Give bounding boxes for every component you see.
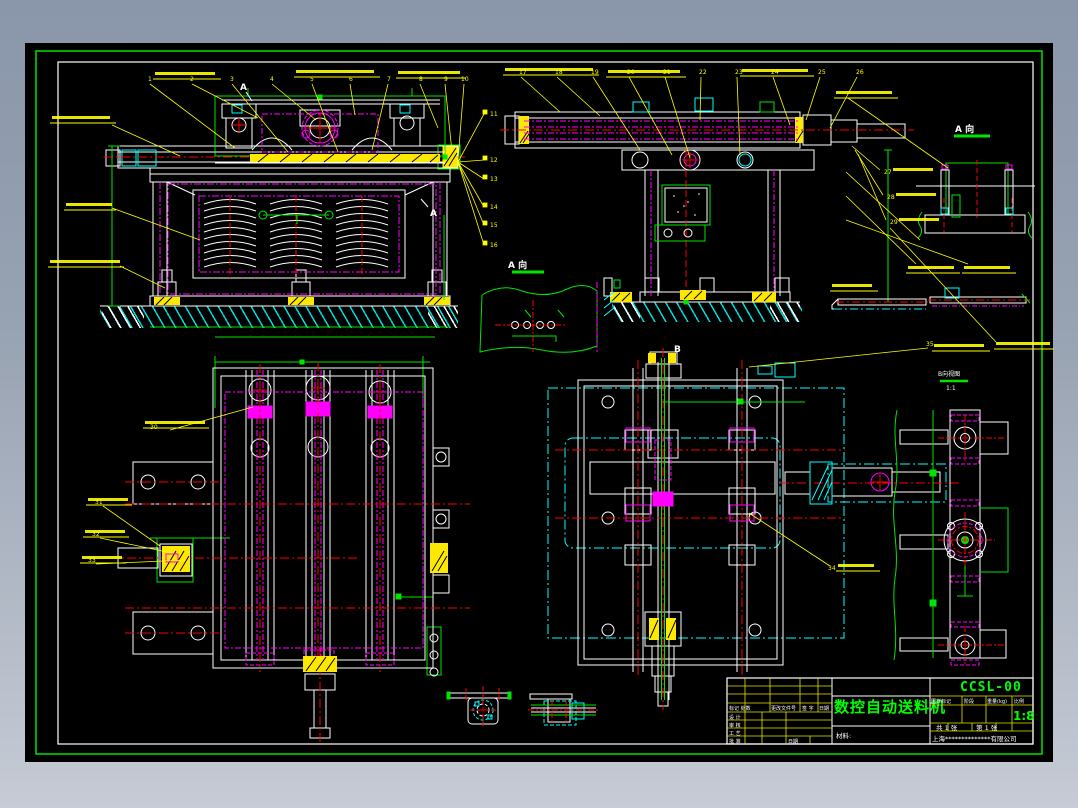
callout: 9 — [444, 76, 448, 83]
callout: 34 — [828, 565, 836, 572]
plan-view-feed-table: B — [548, 345, 962, 710]
callout: 7 — [387, 76, 391, 83]
callout: 28 — [887, 194, 895, 201]
callout: 17 — [519, 69, 527, 76]
callout: 12 — [490, 157, 498, 164]
callout: 13 — [490, 176, 498, 183]
revision-header-date: 日期 — [819, 706, 829, 712]
callout: 33 — [88, 557, 96, 564]
title-block: 标记 处数 更改文件号 签 字 日期 设 计 审 核 工 艺 批 准 日期 数控… — [727, 678, 1035, 745]
stamp-header-scale: 比例 — [1014, 698, 1024, 705]
sheet-no: 第 1 张 — [976, 723, 998, 732]
detail-flange-small — [447, 686, 511, 728]
callout: 21 — [663, 69, 671, 76]
callout: 32 — [92, 531, 100, 538]
sheet-borders — [36, 51, 1042, 754]
callout: 10 — [461, 76, 469, 83]
callout: 14 — [490, 204, 498, 211]
section-mark-a2: A — [430, 209, 437, 219]
part-name-microlabels — [48, 68, 1054, 571]
front-elevation-view: A A — [100, 83, 465, 337]
side-section-view: B向视图 1:1 — [894, 370, 1008, 665]
stamp-header-mark: 图样标记 — [931, 698, 951, 705]
callout: 22 — [699, 69, 707, 76]
callout: 20 — [627, 69, 635, 76]
callout: 11 — [490, 111, 498, 118]
cad-drawing-svg: A A — [0, 0, 1078, 808]
b-view-scale: 1:1 — [946, 385, 956, 392]
section-mark-b: B — [674, 345, 681, 355]
date-label: 日期 — [788, 739, 798, 745]
b-view-label: B向视图 — [938, 370, 960, 378]
callout-leaders — [96, 77, 996, 566]
callout: 16 — [490, 242, 498, 249]
row-process: 工 艺 — [729, 731, 741, 737]
stamp-header-stage: 阶段 — [964, 698, 974, 705]
row-approve: 批 准 — [729, 738, 741, 745]
revision-header-file: 更改文件号 — [771, 705, 796, 712]
callout: 27 — [884, 169, 892, 176]
callout: 1 — [148, 76, 152, 83]
a-view-label-right: A 向 — [955, 123, 974, 135]
callout: 3 — [230, 76, 234, 83]
callout: 29 — [890, 219, 898, 226]
callout: 19 — [591, 69, 599, 76]
a-view-label-mid: A 向 — [508, 259, 527, 271]
section-mark-a1: A — [240, 83, 247, 93]
revision-header-mark: 标记 处数 — [729, 705, 751, 712]
callout: 4 — [270, 76, 274, 83]
callout: 6 — [349, 76, 353, 83]
callout: 31 — [95, 499, 103, 506]
callout: 23 — [735, 69, 743, 76]
callout: 24 — [771, 69, 779, 76]
product-name: 数控自动送料机 — [834, 698, 946, 716]
detail-slider-small — [528, 694, 598, 725]
stamp-header-weight: 重量(kg) — [987, 698, 1007, 705]
row-check: 审 核 — [729, 722, 741, 729]
scale-value: 1:8 — [1013, 709, 1035, 723]
sheet-total: 共 1 张 — [936, 723, 958, 732]
drawing-number: CCSL-00 — [960, 680, 1022, 695]
callout: 8 — [419, 76, 423, 83]
material-label: 材料: — [836, 731, 851, 740]
callout: 35 — [926, 341, 934, 348]
cad-screenshot: A A — [0, 0, 1078, 808]
callout: 25 — [818, 69, 826, 76]
callout: 5 — [310, 76, 314, 83]
row-design: 设 计 — [729, 714, 741, 721]
side-elevation-view: A 向 — [500, 98, 914, 304]
revision-header-sign: 签 字 — [802, 705, 814, 712]
callout: 30 — [150, 424, 158, 431]
company-name: 上海**************有限公司 — [932, 734, 1017, 743]
partial-section-fragment — [480, 278, 620, 352]
callout: 15 — [490, 222, 498, 229]
plan-view-lower-assembly — [110, 356, 470, 742]
callout: 18 — [555, 69, 563, 76]
callout: 26 — [856, 69, 864, 76]
callout: 2 — [190, 76, 194, 83]
